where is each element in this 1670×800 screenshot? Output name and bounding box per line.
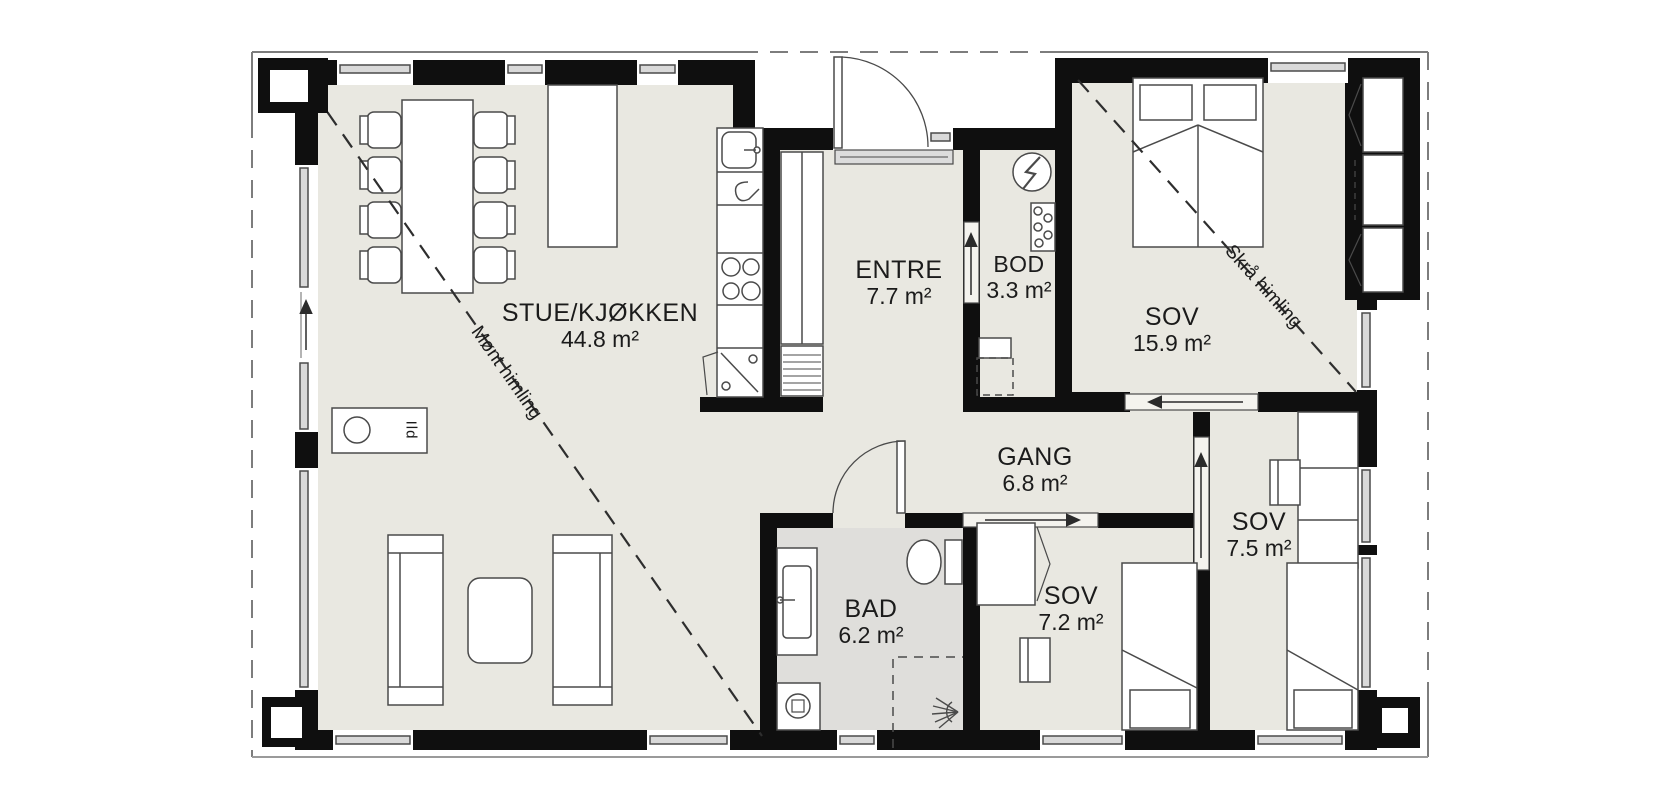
kitchen-island <box>548 85 617 247</box>
window-left-1 <box>295 165 318 290</box>
post-southeast <box>1372 697 1420 748</box>
window-left-2 <box>295 360 318 432</box>
bod-box <box>979 338 1011 358</box>
wall-kitchen-entre <box>763 128 780 412</box>
window-top-4 <box>1268 58 1348 83</box>
wall-bad-north-right <box>905 513 963 528</box>
wall-sovmaster-south-right <box>1258 392 1377 412</box>
wall-sovmaster-south-left <box>1072 392 1130 412</box>
floorplan: STUE/KJØKKEN 44.8 m² ENTRE 7.7 m² BOD 3.… <box>0 0 1670 800</box>
pocket-door-bod <box>964 222 979 303</box>
window-right-1 <box>1357 310 1377 390</box>
pocket-door-sov-mid <box>1194 437 1209 570</box>
bod-shelf <box>1031 203 1055 251</box>
window-entrance-sidelight <box>928 128 953 150</box>
sofa-left <box>388 535 443 705</box>
sov-mid-closet <box>1298 412 1358 568</box>
window-right-2 <box>1357 467 1377 545</box>
wall-gang-south <box>1098 513 1195 528</box>
window-bottom-2 <box>647 730 730 750</box>
kitchen-sink-icon <box>722 132 760 168</box>
post-southwest <box>262 697 312 747</box>
window-bottom-5 <box>1255 730 1345 750</box>
coffee-table <box>468 578 532 663</box>
window-bottom-4 <box>1040 730 1125 750</box>
entre-furniture <box>781 152 823 396</box>
sov-mid-bed <box>1287 563 1358 730</box>
electrical-panel-icon <box>1013 153 1051 191</box>
window-right-3 <box>1357 555 1377 690</box>
wall-bad-north-left <box>763 513 833 528</box>
sov-mid-desk <box>1270 460 1300 505</box>
wall-bod-south <box>963 397 1072 412</box>
entre-wardrobe <box>781 152 823 344</box>
window-top-1 <box>337 60 413 85</box>
toilet-icon <box>907 540 962 584</box>
wall-bad-west <box>760 513 777 750</box>
washing-machine-icon <box>777 683 820 730</box>
floorplan-drawing <box>0 0 1670 800</box>
post-northwest <box>258 58 328 113</box>
entre-bench <box>781 346 823 396</box>
dining-table <box>402 100 473 293</box>
terrace-door <box>295 290 318 360</box>
wood-stove <box>332 408 427 453</box>
window-top-3 <box>637 60 678 85</box>
window-bottom-1 <box>333 730 413 750</box>
wall-bod-sov <box>1055 73 1072 412</box>
sofa-right <box>553 535 612 705</box>
window-left-3 <box>295 468 318 690</box>
wall-bottom <box>295 730 1377 750</box>
sliding-door-sov-master <box>1125 394 1258 410</box>
sov-small-bed <box>1122 563 1197 730</box>
bathroom-vanity <box>777 548 817 655</box>
window-top-2 <box>505 60 545 85</box>
wall-kitchen-south <box>700 397 823 412</box>
sov-small-desk <box>1020 638 1050 682</box>
window-bottom-3 <box>837 730 877 750</box>
